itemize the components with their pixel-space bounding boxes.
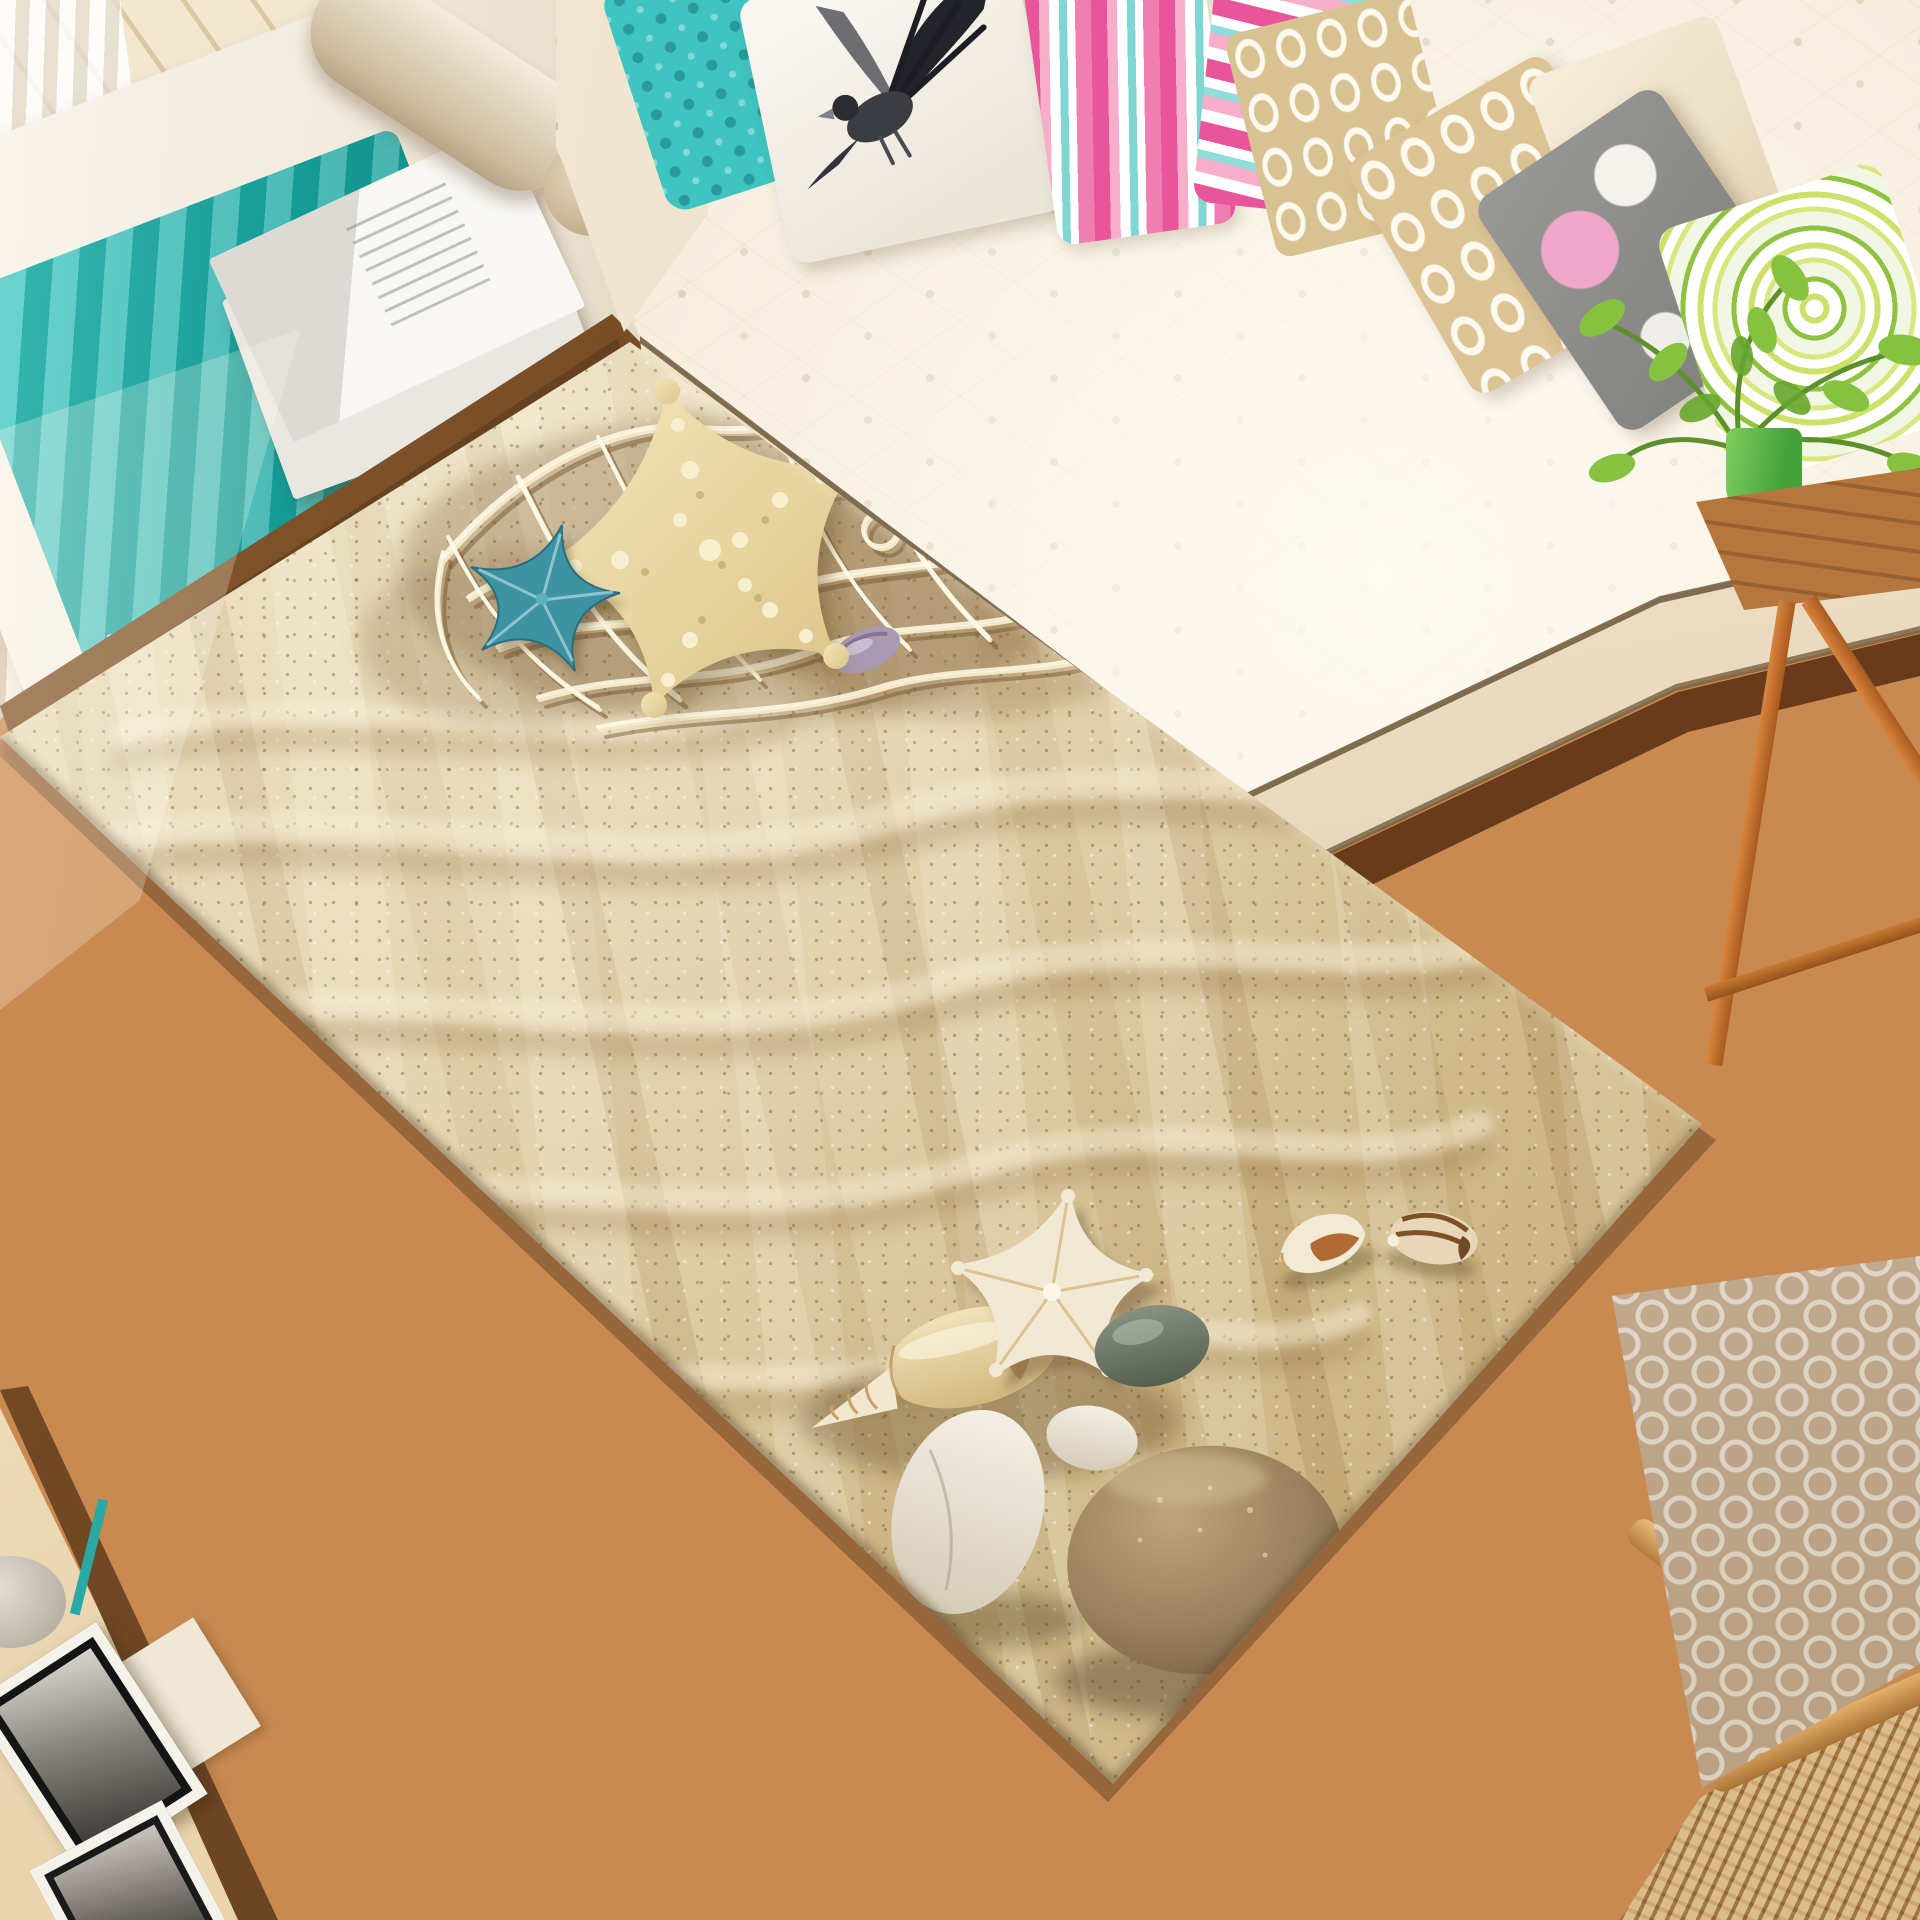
- spiral-shell-brown: [1383, 1206, 1483, 1283]
- spiral-shell-white: [1265, 1202, 1381, 1298]
- living-room-photo: [0, 0, 1920, 1920]
